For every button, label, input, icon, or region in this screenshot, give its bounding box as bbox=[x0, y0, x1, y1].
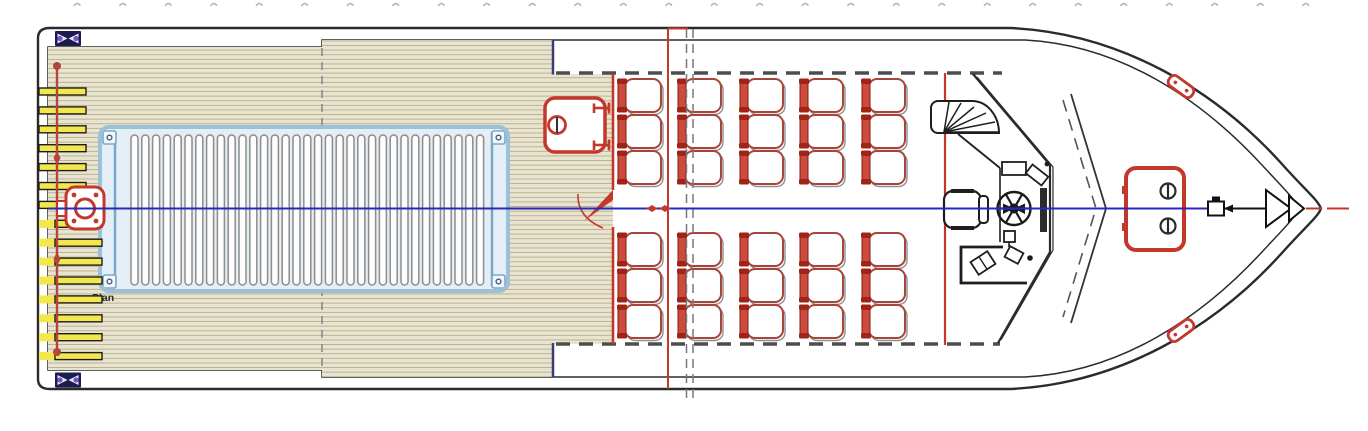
grating-slat bbox=[390, 135, 397, 285]
passenger-seat bbox=[739, 115, 785, 151]
passenger-seat bbox=[617, 151, 663, 187]
stern-step-bar bbox=[39, 145, 86, 152]
passenger-seat bbox=[677, 79, 723, 115]
stern-step-bar bbox=[39, 88, 86, 95]
passenger-seat bbox=[677, 233, 723, 269]
passenger-seat bbox=[799, 269, 845, 305]
deck-plan-canvas: Plan bbox=[0, 0, 1368, 431]
passenger-seat bbox=[861, 79, 907, 115]
stern-step-bar bbox=[55, 277, 102, 284]
grating-slat bbox=[315, 135, 322, 285]
control-lever bbox=[1004, 231, 1015, 242]
passenger-seat bbox=[861, 269, 907, 305]
grating-slat bbox=[358, 135, 365, 285]
stern-step-bar bbox=[55, 239, 102, 246]
passenger-seat bbox=[677, 269, 723, 305]
grating-slat bbox=[433, 135, 440, 285]
stern-step-bar bbox=[39, 126, 86, 133]
dash-side-bar bbox=[1040, 188, 1047, 232]
passenger-seat bbox=[861, 305, 907, 341]
grating-slat bbox=[423, 135, 430, 285]
grating-slat bbox=[239, 135, 246, 285]
passenger-seat bbox=[799, 79, 845, 115]
grating-slat bbox=[250, 135, 257, 285]
grating-slat bbox=[347, 135, 354, 285]
passenger-seat bbox=[799, 305, 845, 341]
grating-slat bbox=[163, 135, 170, 285]
grating-slat bbox=[271, 135, 278, 285]
passenger-seat bbox=[739, 269, 785, 305]
stern-step-bar bbox=[55, 296, 102, 303]
grating-slat bbox=[466, 135, 473, 285]
passenger-seat bbox=[617, 233, 663, 269]
grating-slat bbox=[401, 135, 408, 285]
grating-slat bbox=[142, 135, 149, 285]
passenger-seat bbox=[617, 269, 663, 305]
grating-slat bbox=[412, 135, 419, 285]
grating-slat bbox=[217, 135, 224, 285]
deck-plan-svg: Plan bbox=[0, 0, 1368, 431]
stern-step-bar bbox=[39, 164, 86, 171]
passenger-seat bbox=[617, 305, 663, 341]
grating-slat bbox=[304, 135, 311, 285]
grating-slat bbox=[444, 135, 451, 285]
passenger-seat bbox=[861, 233, 907, 269]
passenger-seat bbox=[799, 151, 845, 187]
wc-unit bbox=[545, 98, 610, 152]
stern-step-bar bbox=[39, 107, 86, 114]
grating-slat bbox=[207, 135, 214, 285]
grating-slat bbox=[379, 135, 386, 285]
grating-slat bbox=[325, 135, 332, 285]
passenger-seat bbox=[677, 305, 723, 341]
grating-slat bbox=[477, 135, 484, 285]
passenger-seat bbox=[861, 151, 907, 187]
passenger-seat bbox=[677, 115, 723, 151]
instrument-panel bbox=[1002, 162, 1026, 175]
passenger-seat bbox=[739, 305, 785, 341]
grating-slat bbox=[185, 135, 192, 285]
grating-slat bbox=[293, 135, 300, 285]
stern-step-bar bbox=[55, 315, 102, 322]
grating-slat bbox=[131, 135, 138, 285]
grating-slat bbox=[196, 135, 203, 285]
grating-slat bbox=[369, 135, 376, 285]
stern-step-bar bbox=[55, 258, 102, 265]
passenger-seat bbox=[739, 79, 785, 115]
stern-step-bar bbox=[55, 334, 102, 341]
mooring-bollard-stern-starboard bbox=[55, 373, 81, 388]
passenger-seat bbox=[617, 115, 663, 151]
passenger-seat bbox=[617, 79, 663, 115]
passenger-seat bbox=[799, 115, 845, 151]
grating-slat bbox=[261, 135, 268, 285]
passenger-seat bbox=[739, 151, 785, 187]
grating-slat bbox=[336, 135, 343, 285]
stern-step-bar bbox=[55, 353, 102, 360]
passenger-seat bbox=[677, 151, 723, 187]
passenger-seat bbox=[861, 115, 907, 151]
passenger-seat bbox=[739, 233, 785, 269]
grating-slat bbox=[228, 135, 235, 285]
passenger-seat bbox=[799, 233, 845, 269]
grating-slat bbox=[282, 135, 289, 285]
mooring-bollard-stern-port bbox=[55, 31, 81, 46]
grating-slat bbox=[174, 135, 181, 285]
grating-slat bbox=[455, 135, 462, 285]
grating-slat bbox=[153, 135, 160, 285]
